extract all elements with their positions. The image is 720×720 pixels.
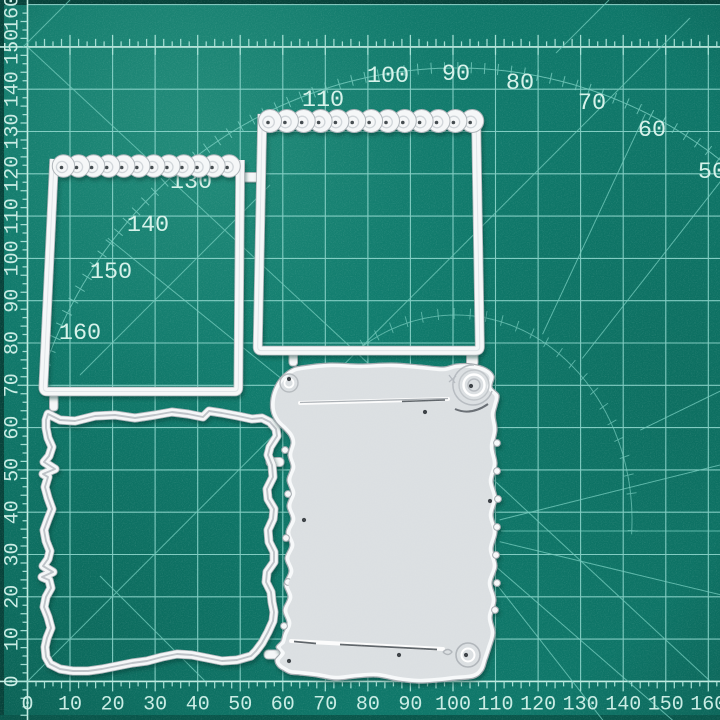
svg-text:130: 130 — [2, 113, 25, 149]
svg-text:60: 60 — [271, 694, 295, 717]
svg-text:30: 30 — [2, 542, 25, 566]
svg-text:160: 160 — [690, 694, 720, 717]
svg-text:150: 150 — [90, 259, 132, 286]
svg-text:140: 140 — [127, 212, 169, 239]
svg-text:110: 110 — [2, 198, 25, 234]
svg-text:150: 150 — [648, 694, 684, 717]
svg-text:50: 50 — [698, 159, 720, 186]
svg-text:40: 40 — [186, 694, 210, 717]
svg-text:0: 0 — [21, 694, 33, 717]
svg-text:80: 80 — [2, 331, 25, 355]
svg-text:70: 70 — [578, 90, 606, 117]
svg-text:120: 120 — [520, 694, 556, 717]
svg-text:80: 80 — [506, 70, 534, 97]
svg-text:60: 60 — [638, 117, 666, 144]
svg-text:100: 100 — [435, 694, 471, 717]
svg-text:70: 70 — [313, 694, 337, 717]
svg-text:150: 150 — [2, 29, 25, 65]
svg-text:10: 10 — [58, 694, 82, 717]
svg-text:160: 160 — [59, 320, 101, 347]
svg-text:50: 50 — [2, 458, 25, 482]
svg-text:50: 50 — [228, 694, 252, 717]
svg-text:120: 120 — [2, 156, 25, 192]
svg-text:90: 90 — [442, 61, 470, 88]
svg-text:10: 10 — [2, 627, 25, 651]
svg-text:160: 160 — [2, 0, 25, 31]
svg-text:140: 140 — [2, 71, 25, 107]
svg-text:100: 100 — [2, 240, 25, 276]
svg-text:140: 140 — [605, 694, 641, 717]
svg-text:60: 60 — [2, 416, 25, 440]
svg-text:20: 20 — [2, 585, 25, 609]
svg-text:0: 0 — [2, 675, 25, 687]
svg-text:70: 70 — [2, 373, 25, 397]
svg-text:80: 80 — [356, 694, 380, 717]
svg-text:110: 110 — [477, 694, 513, 717]
svg-text:40: 40 — [2, 500, 25, 524]
svg-text:100: 100 — [367, 63, 409, 90]
svg-text:130: 130 — [563, 694, 599, 717]
svg-text:30: 30 — [143, 694, 167, 717]
svg-text:90: 90 — [2, 289, 25, 313]
svg-text:20: 20 — [101, 694, 125, 717]
svg-text:90: 90 — [398, 694, 422, 717]
